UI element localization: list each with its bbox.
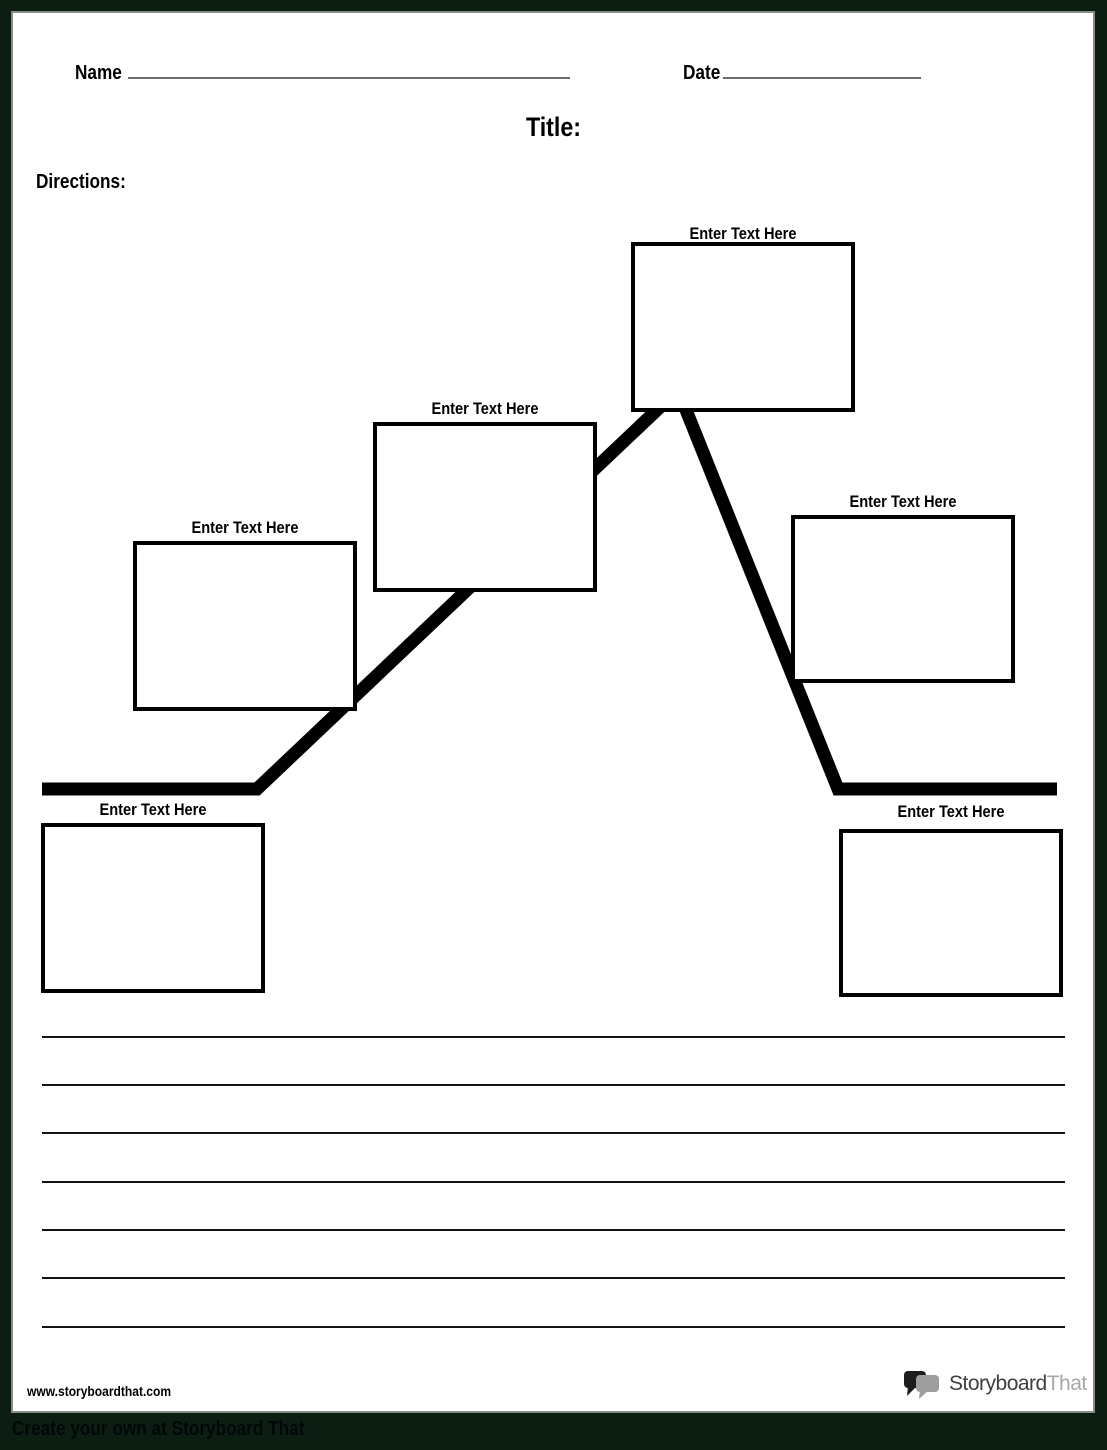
exposition-text-box[interactable] [41,823,265,993]
climax-box-label: Enter Text Here [647,224,840,244]
resolution-text-box[interactable] [839,829,1063,997]
plot-arc-line [0,0,1107,1450]
resolution-box-label: Enter Text Here [855,802,1048,822]
rising-action-1-text-box[interactable] [133,541,357,711]
falling-action-box-label: Enter Text Here [807,492,1000,512]
exposition-box-label: Enter Text Here [57,800,250,820]
falling-action-text-box[interactable] [791,515,1015,683]
rising-action-1-box-label: Enter Text Here [149,518,342,538]
rising-action-2-box-label: Enter Text Here [389,399,582,419]
rising-action-2-text-box[interactable] [373,422,597,592]
worksheet-page: Name Date Title: Directions: Enter Text … [0,0,1107,1450]
climax-text-box[interactable] [631,242,855,412]
